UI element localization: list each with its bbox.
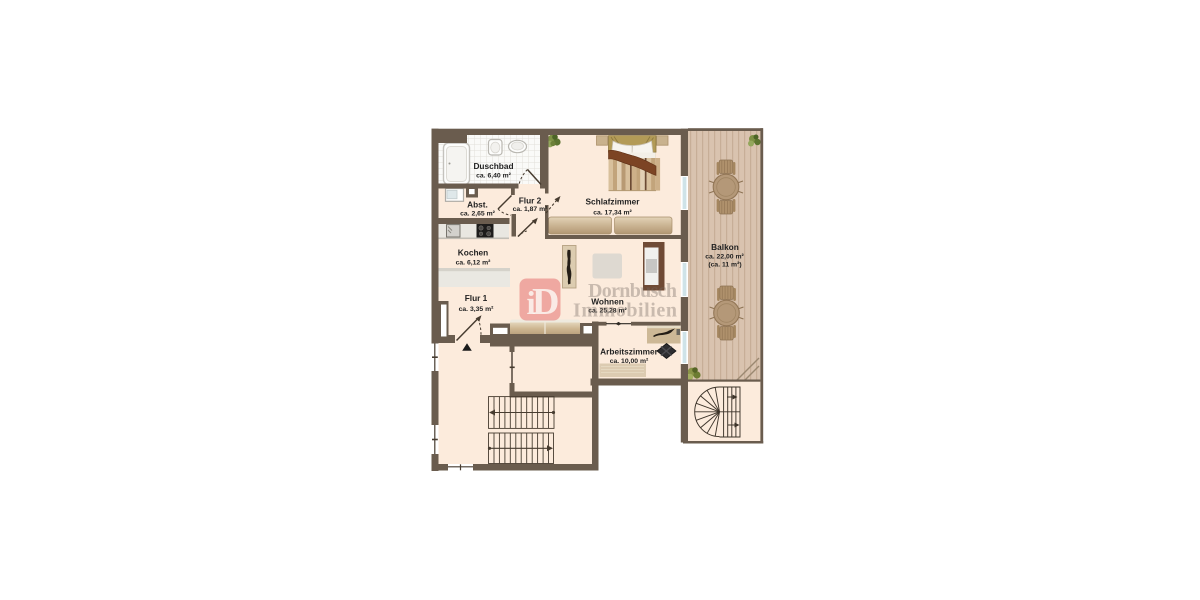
svg-text:Arbeitszimmer: Arbeitszimmer	[600, 347, 658, 357]
svg-text:Duschbad: Duschbad	[473, 161, 513, 171]
svg-text:ca. 6,40 m²: ca. 6,40 m²	[476, 173, 511, 180]
svg-text:Immobilien: Immobilien	[573, 300, 677, 322]
svg-text:Flur 1: Flur 1	[465, 293, 488, 303]
svg-text:Abst.: Abst.	[467, 200, 488, 210]
svg-text:ca. 10,00 m²: ca. 10,00 m²	[610, 358, 649, 365]
svg-text:ca. 3,35 m²: ca. 3,35 m²	[459, 306, 494, 313]
svg-text:Balkon: Balkon	[711, 242, 739, 252]
svg-text:ca. 2,65 m²: ca. 2,65 m²	[460, 211, 495, 218]
svg-text:Schlafzimmer: Schlafzimmer	[586, 197, 641, 207]
svg-text:D: D	[532, 281, 559, 323]
svg-text:(ca. 11 m²): (ca. 11 m²)	[708, 262, 741, 269]
svg-text:ca. 17,34 m²: ca. 17,34 m²	[593, 210, 632, 217]
svg-text:Kochen: Kochen	[458, 248, 488, 258]
svg-text:ca. 6,12 m²: ca. 6,12 m²	[456, 260, 491, 267]
svg-text:ca. 1,87 m²: ca. 1,87 m²	[513, 206, 548, 213]
svg-text:ca. 22,00 m²: ca. 22,00 m²	[705, 254, 744, 261]
svg-text:Flur 2: Flur 2	[519, 196, 542, 206]
